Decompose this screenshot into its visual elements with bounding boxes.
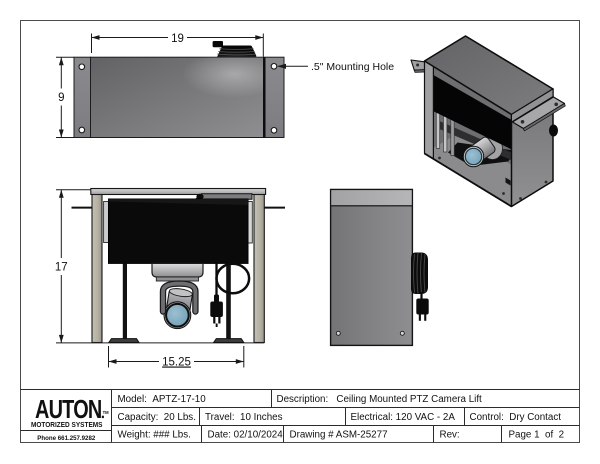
svg-text:Phone 661.257.9282: Phone 661.257.9282 [37, 435, 95, 442]
svg-text:Electrical: 120 VAC - 2A: Electrical: 120 VAC - 2A [351, 412, 456, 423]
svg-text:Page 1 of 2: Page 1 of 2 [509, 429, 565, 440]
svg-text:.5" Mounting Hole: .5" Mounting Hole [311, 61, 394, 73]
svg-text:Capacity: 20 Lbs.: Capacity: 20 Lbs. [118, 412, 196, 423]
svg-text:Date: 02/10/2024: Date: 02/10/2024 [208, 429, 284, 440]
svg-text:Description: Ceiling Mounted: Description: Ceiling Mounted PTZ Camera … [277, 394, 483, 405]
svg-text:Travel: 10 Inches: Travel: 10 Inches [205, 412, 283, 423]
svg-text:Drawing # ASM-25277: Drawing # ASM-25277 [290, 429, 388, 440]
svg-text:Rev:: Rev: [440, 429, 460, 440]
svg-text:19: 19 [171, 33, 184, 45]
svg-text:9: 9 [58, 92, 64, 104]
svg-text:TM: TM [103, 410, 110, 415]
svg-text:Control: Dry Contact: Control: Dry Contact [470, 412, 562, 423]
svg-text:17: 17 [55, 262, 68, 274]
svg-text:Weight: ### Lbs.: Weight: ### Lbs. [118, 429, 191, 440]
svg-text:Model: APTZ-17-10: Model: APTZ-17-10 [118, 394, 207, 405]
svg-text:MOTORIZED SYSTEMS: MOTORIZED SYSTEMS [31, 420, 103, 429]
svg-text:15.25: 15.25 [162, 357, 191, 369]
